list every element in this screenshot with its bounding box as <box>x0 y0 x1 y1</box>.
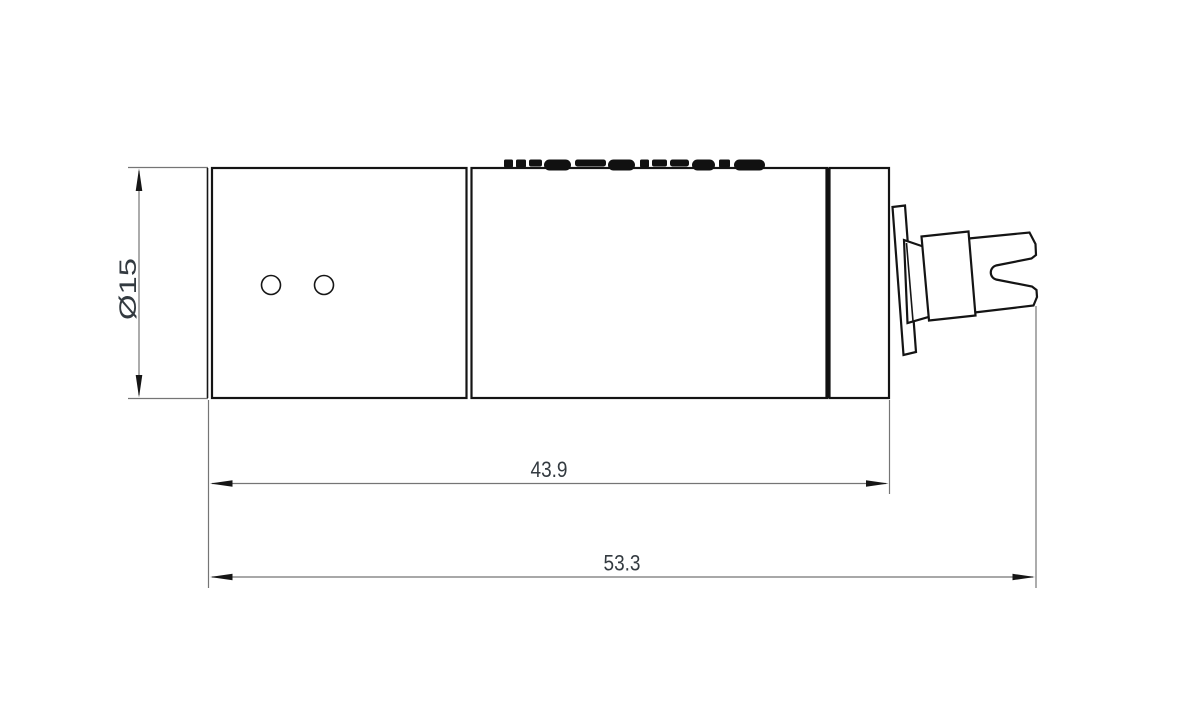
arrow-right-icon <box>866 480 889 486</box>
engraving-fragment <box>529 160 542 167</box>
body-right-section <box>828 168 890 398</box>
drawing-canvas: Ø15 43.9 53.3 <box>0 0 1200 720</box>
engraving-fragment <box>670 160 689 167</box>
dimension-diameter: Ø15 <box>115 169 142 398</box>
engraving-fragment <box>734 160 765 171</box>
engraving-fragment <box>652 160 667 167</box>
body-right-rect <box>830 168 890 398</box>
engraving-fragment <box>719 160 730 168</box>
dimension-label-overall-length: 53.3 <box>604 551 641 576</box>
body-left-rect <box>212 168 467 398</box>
engineering-drawing: Ø15 43.9 53.3 <box>0 0 1200 720</box>
engraving-fragment <box>544 160 571 171</box>
engraving-fragment <box>608 160 635 171</box>
body-middle-section <box>472 168 828 398</box>
body-middle-rect <box>472 168 828 398</box>
arrow-left-icon <box>210 480 233 486</box>
shaft-assembly <box>893 206 1038 356</box>
engraving-fragment <box>575 160 606 167</box>
arrow-up-icon <box>136 169 143 192</box>
dimension-label-diameter: Ø15 <box>115 258 142 320</box>
engraving-fragment <box>504 160 513 168</box>
arrow-down-icon <box>136 375 143 398</box>
engraving-fragment <box>516 160 526 168</box>
engraving-fragment <box>640 160 649 168</box>
dimension-body-length: 43.9 <box>210 457 889 487</box>
body-left-section <box>208 168 467 398</box>
arrow-right-icon <box>1013 574 1036 580</box>
dimension-label-body-length: 43.9 <box>531 457 568 482</box>
shaft-collar <box>922 232 976 321</box>
shaft-slotted-end <box>969 233 1038 313</box>
arrow-left-icon <box>210 574 233 580</box>
engraving-fragment <box>692 160 715 171</box>
dimension-overall-length: 53.3 <box>210 551 1035 581</box>
